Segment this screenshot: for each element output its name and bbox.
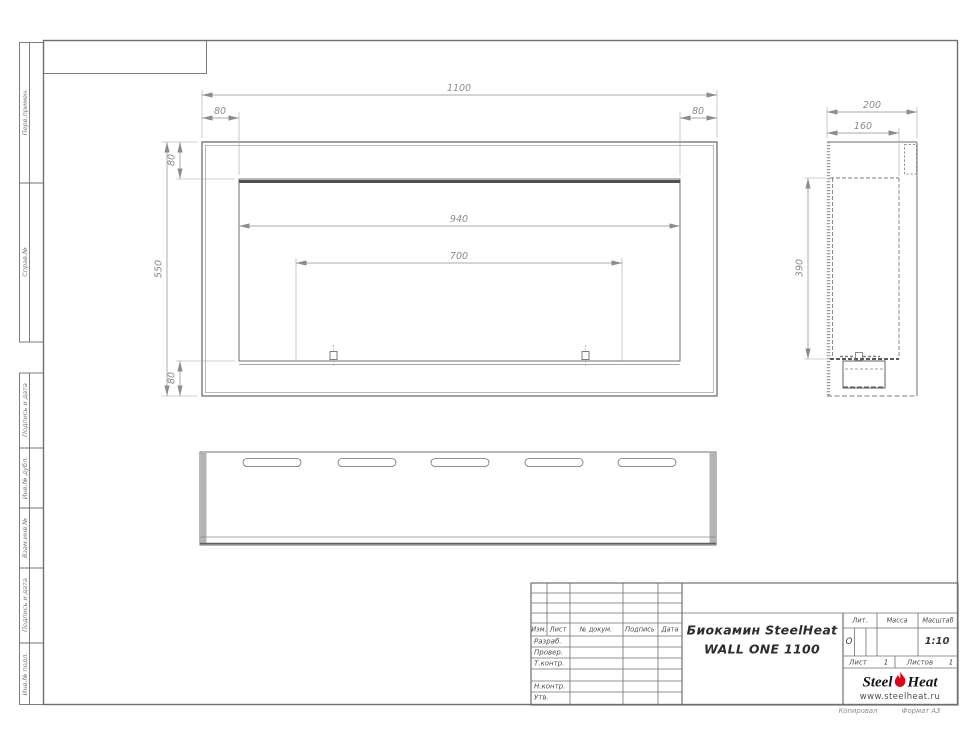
sheet-frame	[44, 41, 958, 705]
steelheat-logo: Steel Heat	[863, 672, 938, 691]
tb-row-utv: Утв.	[534, 695, 549, 702]
burner-clips	[330, 345, 589, 366]
firebox-hidden-outline	[830, 178, 899, 359]
side-view	[827, 142, 917, 396]
margin-label-perv-primen: Перв.примен.	[22, 89, 29, 136]
wall-bracket-hidden	[905, 145, 917, 175]
dim-label-940: 940	[450, 215, 468, 225]
margin-label-podpis-data-2: Подпись и дата	[22, 578, 29, 632]
vent-slots	[243, 459, 676, 467]
dim-label-700: 700	[450, 252, 468, 262]
dim-label-390: 390	[795, 259, 805, 277]
tb-sheet-value: 1	[884, 659, 888, 666]
tb-lit-value: О	[846, 638, 853, 647]
logo-word-steel: Steel	[863, 676, 893, 691]
margin-label-podpis-data-1: Подпись и дата	[22, 383, 29, 437]
bottom-panel-right-edge	[710, 453, 716, 544]
front-opening-outline	[239, 179, 680, 361]
tb-scale-value: 1:10	[925, 637, 950, 647]
drawing-linework	[0, 0, 970, 750]
tb-col-podpis: Подпись	[625, 627, 655, 634]
margin-label-inv-podl: Инв.№ подл.	[22, 653, 29, 696]
logo-word-heat: Heat	[908, 676, 938, 691]
tb-row-razrab: Разраб.	[534, 639, 562, 646]
margin-label-inv-dubl: Инв.№ дубл.	[22, 457, 29, 499]
front-view	[202, 142, 717, 396]
dim-label-1100: 1100	[447, 84, 471, 94]
margin-label-vzam-inv: Взам.инв.№	[22, 518, 29, 558]
dim-label-80-left: 80	[214, 107, 226, 117]
dim-label-200: 200	[863, 101, 881, 111]
tb-col-ndokum: № докум.	[580, 627, 613, 634]
tb-mass-label: Масса	[886, 618, 907, 625]
footer-kopiroval: Копировал	[839, 708, 878, 715]
front-dimensions	[161, 90, 717, 396]
dim-label-80-right: 80	[692, 107, 704, 117]
dim-label-160: 160	[854, 122, 872, 132]
tb-scale-label: Масштаб	[922, 618, 953, 625]
tb-row-nkontr: Н.контр.	[534, 684, 565, 691]
tb-row-tkontr: Т.контр.	[534, 661, 564, 668]
document-title-line1: Биокамин SteelHeat	[687, 623, 838, 638]
tb-col-data: Дата	[661, 627, 678, 634]
tb-sheets-label: Листов	[907, 659, 933, 666]
tb-lit-label: Лит.	[852, 618, 867, 625]
margin-label-sprav-no: Справ.№	[22, 247, 29, 277]
tb-sheet-label: Лист	[849, 659, 867, 666]
tb-row-prover: Провер.	[534, 650, 563, 657]
tb-col-izm: Изм.	[531, 627, 547, 634]
bottom-panel-left-edge	[201, 453, 207, 544]
bottom-view	[200, 452, 716, 545]
flame-icon	[894, 672, 907, 692]
drawing-sheet: 1100 80 80 940 700 550 80 80 200 160 390…	[0, 0, 970, 750]
logo-url: www.steelheat.ru	[860, 693, 941, 702]
footer-format: Формат А3	[902, 708, 941, 715]
document-title-line2: WALL ONE 1100	[704, 642, 820, 657]
burner-box	[840, 353, 885, 389]
side-dimensions	[804, 107, 917, 359]
tb-sheets-value: 1	[949, 659, 953, 666]
dim-label-550: 550	[154, 260, 164, 278]
dim-label-80-bottom: 80	[167, 372, 177, 384]
tb-col-list: Лист	[550, 627, 567, 634]
dim-label-80-top: 80	[167, 154, 177, 166]
